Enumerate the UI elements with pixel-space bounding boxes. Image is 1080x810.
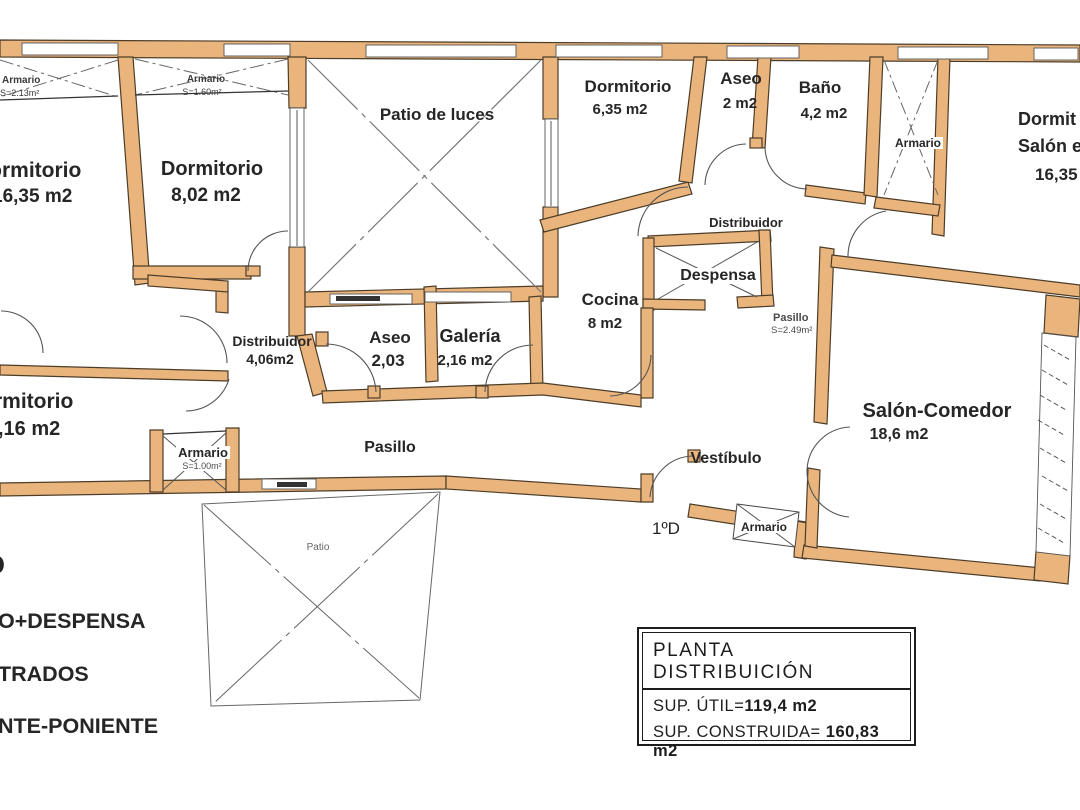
edge-text-line2: TRADOS [0, 664, 89, 686]
sup-util-value: 119,4 m2 [744, 697, 817, 715]
windows [22, 43, 1078, 556]
distribuidor-area: 4,06m2 [246, 352, 293, 366]
title-block-sup-construida: SUP. CONSTRUIDA= 160,83 m2 [643, 716, 910, 761]
vestibulo-label: Vestíbulo [690, 451, 761, 467]
dormitorio-inf-label: Dormitorio [0, 391, 73, 412]
edge-text-fragment: O [0, 552, 5, 579]
salon-comedor-label: Salón-Comedor [863, 401, 1012, 421]
title-block-sup-util: SUP. ÚTIL=119,4 m2 [643, 690, 910, 716]
dormitorio-salon-line2: Salón e [1018, 137, 1080, 155]
dormitorio-3-label: Dormitorio [585, 78, 672, 95]
bano-label: Baño [799, 79, 842, 96]
galeria-label: Galería [439, 327, 500, 345]
aseo-label: Aseo [369, 329, 411, 346]
despensa-label: Despensa [678, 268, 758, 284]
dormitorio-2-label: Dormitorio [161, 159, 263, 179]
cocina-label: Cocina [582, 291, 639, 308]
edge-text-line1: O+DESPENSA [0, 611, 146, 633]
armario-tl-label: Armario [2, 76, 40, 86]
sup-util-label: SUP. ÚTIL= [653, 697, 744, 715]
bano-area: 4,2 m2 [801, 106, 848, 121]
salon-comedor-area: 18,6 m2 [870, 427, 929, 443]
sup-construida-label: SUP. CONSTRUIDA= [653, 723, 821, 741]
armario-vestibulo-label: Armario [739, 521, 789, 533]
aseo-top-area: 2 m2 [723, 96, 757, 111]
aseo-top-label: Aseo [720, 70, 762, 87]
distribuidor-label: Distribuidor [232, 334, 311, 348]
dormitorio-salon-line1: Dormit [1018, 110, 1076, 128]
title-block-title: PLANTA DISTRIBUICIÓN [643, 633, 910, 688]
floorplan-page: Armario S=2.13m² Armario S=1.60m² Dormit… [0, 0, 1080, 810]
patio-luces-label: Patio de luces [380, 106, 494, 123]
dormitorio-left-label: Dormitorio [0, 160, 81, 181]
dormitorio-3-area: 6,35 m2 [592, 102, 647, 117]
armario-inf-area: S=1.00m² [180, 462, 223, 471]
armario-tl-area: S=2.13m² [0, 89, 39, 98]
aseo-area: 2,03 [371, 352, 404, 369]
dormitorio-inf-area: ,16 m2 [0, 419, 60, 439]
pasillo-label: Pasillo [364, 440, 416, 456]
dormitorio-salon-line3: 16,35 [1035, 166, 1078, 183]
cocina-area: 8 m2 [588, 316, 622, 331]
patio-box [202, 492, 440, 706]
patio-label: Patio [307, 543, 330, 553]
galeria-area: 2,16 m2 [437, 353, 492, 368]
title-block-inner: PLANTA DISTRIBUICIÓN SUP. ÚTIL=119,4 m2 … [642, 632, 911, 741]
dormitorio-left-area: 16,35 m2 [0, 187, 72, 206]
armario-tl2-area: S=1.60m² [182, 88, 221, 97]
armario-right-label: Armario [893, 137, 943, 149]
pasillo-pequeno-label: Pasillo [773, 313, 808, 324]
armario-tl2-label: Armario [187, 75, 225, 85]
walls [0, 40, 1080, 584]
distribuidor-top-label: Distribuidor [709, 216, 783, 229]
entrance-label: 1ºD [652, 520, 680, 537]
armario-inf-label: Armario [176, 446, 230, 459]
edge-text-line3: NTE-PONIENTE [0, 716, 158, 738]
pasillo-pequeno-area: S=2.49m² [771, 326, 812, 336]
title-block: PLANTA DISTRIBUICIÓN SUP. ÚTIL=119,4 m2 … [637, 627, 916, 746]
dormitorio-2-area: 8,02 m2 [171, 186, 241, 205]
